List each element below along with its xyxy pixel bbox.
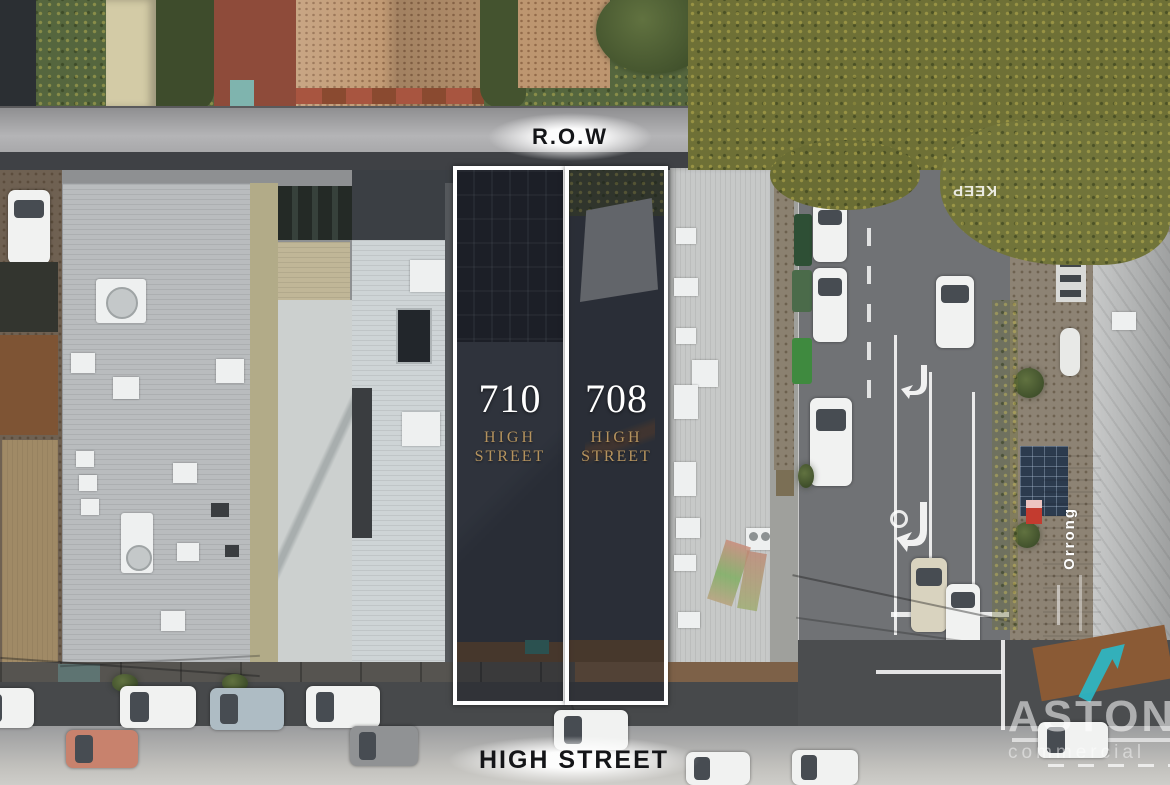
skylight xyxy=(216,359,244,383)
water-tank xyxy=(1060,328,1080,376)
vent xyxy=(676,328,696,344)
skylight xyxy=(161,611,185,631)
warehouse-roof-right xyxy=(1093,232,1170,662)
ac-unit xyxy=(96,279,146,323)
intersection-line xyxy=(876,670,1002,674)
vent xyxy=(674,278,698,296)
parked-car-grey xyxy=(210,688,284,730)
pale-roof-diagonal xyxy=(278,300,354,670)
skylight xyxy=(113,377,139,399)
lane-line xyxy=(972,392,975,597)
yard-clutter xyxy=(0,262,58,332)
roof-vent xyxy=(225,545,239,557)
rust-patch xyxy=(0,335,58,435)
terracotta-roof-2 xyxy=(518,0,610,88)
ac-unit-2 xyxy=(121,513,153,573)
red-sign xyxy=(1026,500,1042,524)
parked-car xyxy=(120,686,196,728)
property-street-line1: HIGH xyxy=(457,428,563,447)
parked-ute xyxy=(810,398,852,486)
walkway-planks xyxy=(278,242,350,302)
cross-street-dashes xyxy=(1048,764,1170,767)
skylight xyxy=(76,451,94,467)
vent xyxy=(674,555,696,571)
awning-fine-print xyxy=(1079,575,1082,631)
skylight xyxy=(177,543,199,561)
turn-arrow-marking xyxy=(894,502,928,552)
parked-van xyxy=(8,190,50,264)
parked-car xyxy=(306,686,380,728)
skylight xyxy=(81,499,99,515)
property-street-line1: HIGH xyxy=(569,428,664,447)
paver-strip xyxy=(774,180,794,470)
white-roof-building xyxy=(670,168,770,670)
brick-wall xyxy=(214,0,300,112)
parked-car-partial xyxy=(0,688,34,728)
tan-wall-strip xyxy=(250,183,278,670)
skylight xyxy=(71,353,95,373)
ac-fan xyxy=(761,532,770,541)
property-street-line2: STREET xyxy=(569,447,664,466)
lane-line xyxy=(894,335,897,635)
vent xyxy=(692,360,718,387)
driving-car-salmon xyxy=(66,730,138,768)
round-tree xyxy=(1014,368,1044,398)
vent xyxy=(676,228,696,244)
property-street-line2: STREET xyxy=(457,447,563,466)
parked-car xyxy=(813,268,847,342)
roof-fence xyxy=(296,88,484,104)
turn-arrow-marking xyxy=(899,365,929,399)
aston-watermark: ASTON xyxy=(1008,692,1170,742)
leaf-litter xyxy=(992,300,1018,630)
tree-pit xyxy=(776,470,794,496)
vent xyxy=(674,385,698,419)
dark-roof-section xyxy=(352,170,454,242)
property-label-710: 710 HIGH STREET xyxy=(457,375,563,466)
vent xyxy=(678,612,700,628)
lane-dashes xyxy=(867,190,871,400)
driving-car-grey xyxy=(350,726,418,766)
ac-fan xyxy=(126,545,152,571)
street-bush xyxy=(798,464,814,488)
roof-vent xyxy=(211,503,229,517)
property-label-708: 708 HIGH STREET xyxy=(569,375,664,466)
wheelie-bins xyxy=(794,214,812,266)
ac-fan xyxy=(106,287,138,319)
vent xyxy=(674,462,696,496)
skylight xyxy=(1112,312,1136,330)
house-roof-dark xyxy=(0,0,36,112)
moving-car-beige xyxy=(911,558,947,632)
row-label: R.O.W xyxy=(488,113,652,161)
timber-deck xyxy=(2,440,58,680)
property-number: 710 xyxy=(457,375,563,422)
ac-fan xyxy=(749,532,758,541)
aerial-photo: KEEP Orrong xyxy=(0,0,1170,785)
aston-watermark-subtitle: commercial xyxy=(1008,742,1145,764)
high-street-label: HIGH STREET xyxy=(448,736,700,784)
terracotta-roof xyxy=(296,0,484,106)
skylight xyxy=(79,475,97,491)
shadow-gap xyxy=(352,388,372,538)
solar-heater xyxy=(396,308,432,364)
orrong-awning: Orrong xyxy=(1043,455,1101,667)
property-number: 708 xyxy=(569,375,664,422)
bin-yard xyxy=(278,186,352,240)
keep-clear-marking: KEEP xyxy=(941,182,997,199)
vent-box xyxy=(410,260,446,292)
vent xyxy=(676,518,700,538)
moving-car xyxy=(936,276,974,348)
skylight xyxy=(173,463,197,483)
parked-car xyxy=(813,202,847,262)
hedge xyxy=(152,0,214,110)
cream-building-roof xyxy=(106,0,156,108)
boundary-outline-708: 708 HIGH STREET xyxy=(565,166,668,705)
wheelie-bins xyxy=(792,338,812,384)
vent-box xyxy=(402,412,440,446)
blue-grey-roof xyxy=(352,240,454,670)
intersection-line xyxy=(1001,640,1005,730)
wheelie-bins xyxy=(792,270,812,312)
boundary-outline-710: 710 HIGH STREET xyxy=(453,166,567,705)
awning-fine-print xyxy=(1057,585,1060,625)
orrong-sign-text: Orrong xyxy=(1061,507,1078,570)
driving-car xyxy=(792,750,858,785)
tree-canopy-blob xyxy=(770,140,920,210)
warehouse-roof-left xyxy=(62,183,252,672)
